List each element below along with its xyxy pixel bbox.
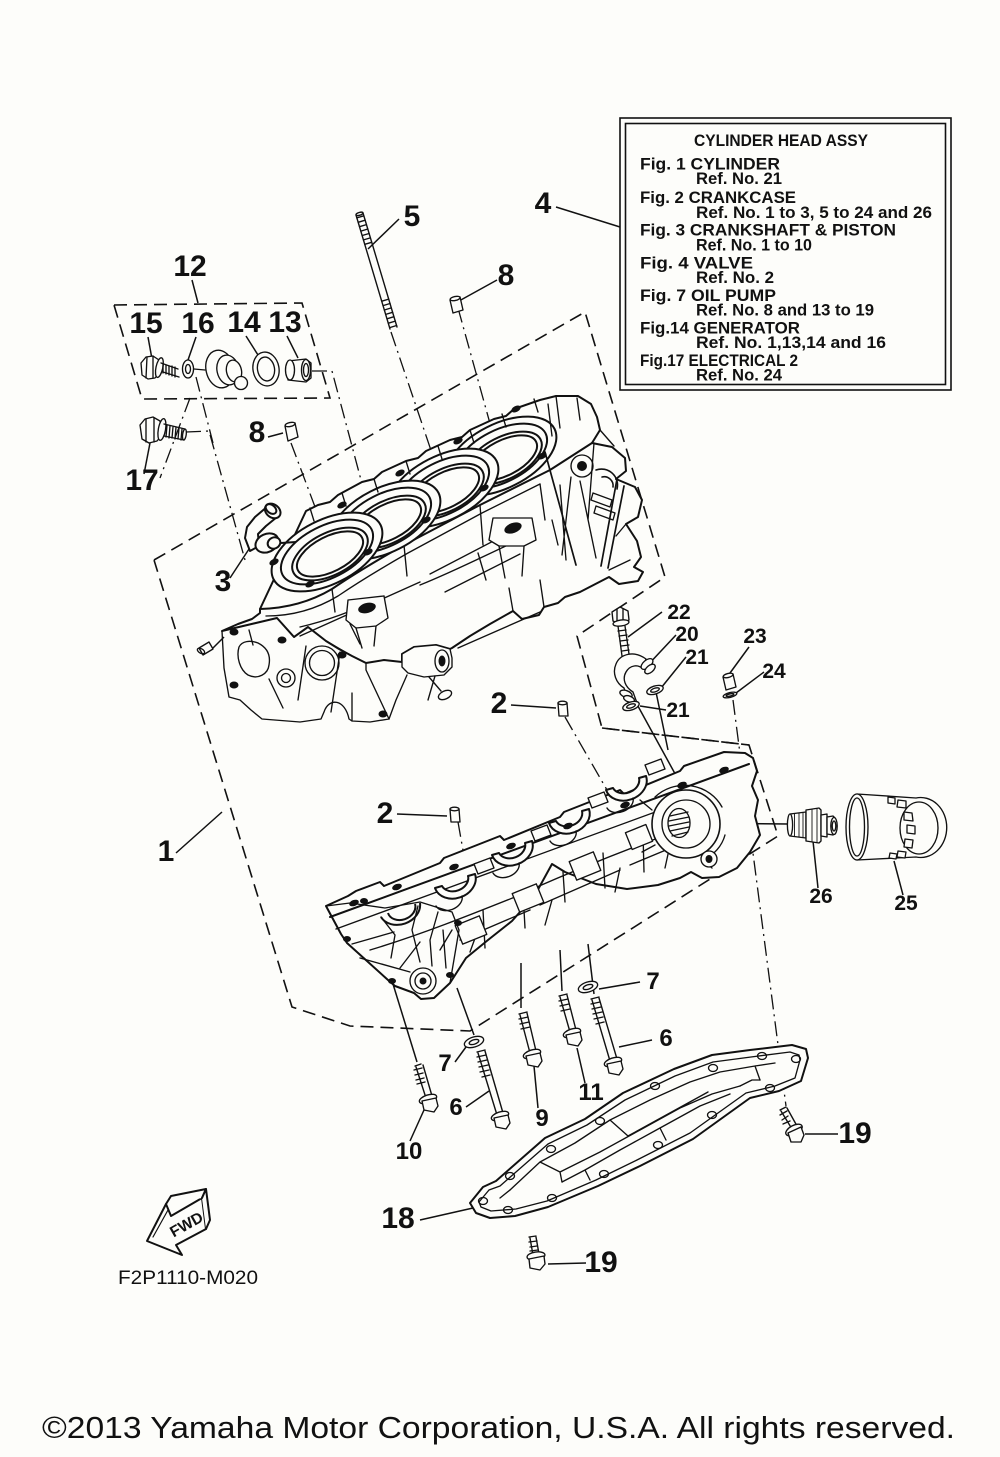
svg-text:Ref. No. 21: Ref. No. 21 <box>696 169 782 188</box>
svg-text:20: 20 <box>675 623 698 646</box>
svg-text:25: 25 <box>894 892 918 915</box>
svg-text:17: 17 <box>125 464 158 497</box>
svg-text:Ref. No. 1 to 3, 5 to 24 and 2: Ref. No. 1 to 3, 5 to 24 and 26 <box>696 203 932 222</box>
svg-text:7: 7 <box>438 1050 451 1077</box>
svg-text:CYLINDER HEAD ASSY: CYLINDER HEAD ASSY <box>694 131 869 150</box>
svg-text:4: 4 <box>535 187 552 220</box>
svg-text:9: 9 <box>535 1105 548 1132</box>
svg-text:Ref. No. 24: Ref. No. 24 <box>696 366 783 385</box>
svg-text:7: 7 <box>646 968 659 995</box>
svg-text:F2P1110-M020: F2P1110-M020 <box>118 1267 258 1289</box>
svg-text:6: 6 <box>659 1025 672 1052</box>
svg-text:21: 21 <box>666 699 690 722</box>
svg-text:6: 6 <box>449 1094 462 1121</box>
svg-text:5: 5 <box>404 200 421 233</box>
svg-text:©2013 Yamaha Motor Corporation: ©2013 Yamaha Motor Corporation, U.S.A. A… <box>42 1410 955 1445</box>
svg-text:2: 2 <box>377 797 394 830</box>
svg-text:18: 18 <box>381 1202 414 1235</box>
svg-text:Ref. No. 1,13,14 and 16: Ref. No. 1,13,14 and 16 <box>696 333 886 352</box>
svg-text:Ref. No. 2: Ref. No. 2 <box>696 268 774 287</box>
svg-text:2: 2 <box>491 687 508 720</box>
svg-text:Ref. No. 1 to 10: Ref. No. 1 to 10 <box>696 236 812 255</box>
svg-text:21: 21 <box>685 646 709 669</box>
svg-text:8: 8 <box>249 416 266 449</box>
svg-text:10: 10 <box>396 1138 423 1165</box>
svg-text:1: 1 <box>158 835 175 868</box>
svg-text:24: 24 <box>762 660 786 683</box>
svg-text:23: 23 <box>743 625 766 648</box>
svg-text:19: 19 <box>838 1117 871 1150</box>
svg-text:11: 11 <box>578 1079 603 1106</box>
svg-text:14: 14 <box>227 306 261 339</box>
svg-text:3: 3 <box>215 565 232 598</box>
svg-text:13: 13 <box>268 306 301 339</box>
svg-text:15: 15 <box>129 307 162 340</box>
svg-text:Ref. No. 8 and 13 to 19: Ref. No. 8 and 13 to 19 <box>696 301 874 320</box>
svg-text:22: 22 <box>667 601 690 624</box>
svg-text:26: 26 <box>809 885 832 908</box>
svg-text:16: 16 <box>181 307 214 340</box>
svg-text:8: 8 <box>498 259 515 292</box>
svg-text:19: 19 <box>584 1246 617 1279</box>
svg-text:12: 12 <box>173 250 206 283</box>
